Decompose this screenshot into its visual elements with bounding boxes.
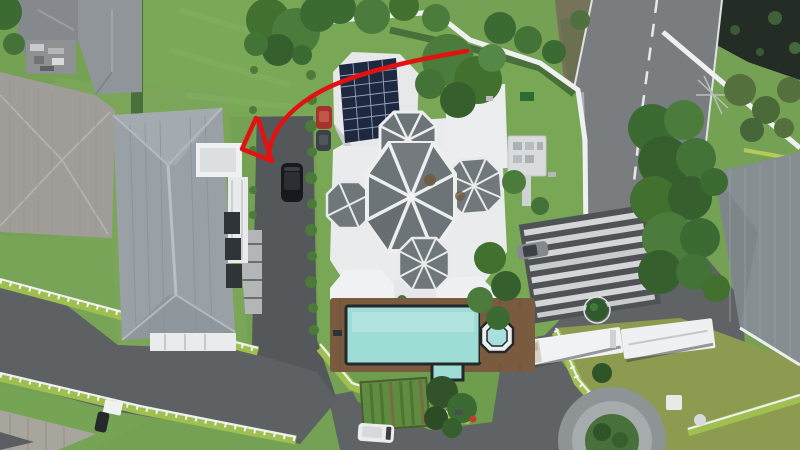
- garden-bed: [360, 378, 429, 430]
- red-object-on-path: [470, 416, 477, 423]
- left-house: [113, 108, 248, 351]
- pool-equipment: [333, 330, 342, 336]
- ground-floor: [150, 333, 236, 351]
- red-car-carport: [316, 106, 332, 129]
- small-equipment: [455, 410, 463, 415]
- garden-tree: [502, 170, 526, 194]
- dark-car-carport: [316, 130, 331, 151]
- lawn-round-object: [694, 414, 706, 426]
- west-octagon-roof: [327, 182, 371, 228]
- central-dome-roof: [367, 143, 455, 251]
- black-car-driveway: [281, 163, 303, 202]
- window-awnings: [224, 212, 242, 288]
- south-octagon-roof: [399, 238, 449, 290]
- round-topiary: [586, 299, 608, 321]
- gate-pillar: [610, 330, 616, 348]
- aerial-photo: [0, 0, 800, 450]
- green-bin: [520, 92, 534, 101]
- white-van: [357, 423, 394, 443]
- dark-bush: [592, 363, 612, 383]
- lawn-utility-box: [666, 395, 682, 410]
